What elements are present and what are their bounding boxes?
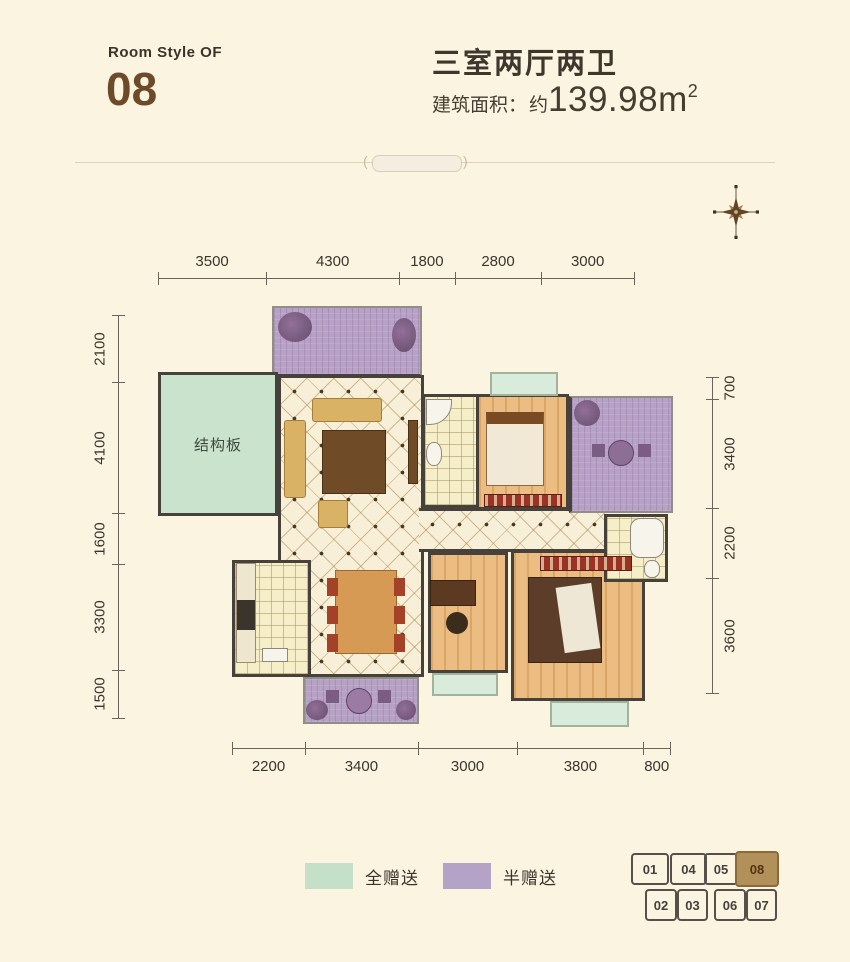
- area-value: 139.98m: [548, 80, 688, 119]
- legend-label: 全赠送: [365, 864, 419, 889]
- ruler-tick-left: [112, 564, 125, 565]
- ruler-tick-left: [112, 513, 125, 514]
- unit-04: 04: [670, 853, 707, 885]
- ruler-tick-left: [112, 718, 125, 719]
- structural-slab-room: 结构板: [158, 372, 278, 516]
- unit-05: 05: [704, 853, 738, 885]
- cabinet-master: [540, 556, 632, 571]
- dim-top-2800: 2800: [481, 253, 514, 270]
- legend-swatch: [443, 863, 491, 889]
- dim-left-4100: 4100: [92, 431, 109, 464]
- ruler-line-right: [712, 377, 713, 693]
- ruler-tick-bottom: [418, 742, 419, 755]
- legend-label: 半赠送: [503, 864, 557, 889]
- ruler-tick-right: [706, 377, 719, 378]
- study-chair: [446, 612, 468, 634]
- plant: [392, 318, 416, 352]
- dim-right-3400: 3400: [722, 437, 739, 470]
- balcony-table-bottom: [346, 688, 372, 714]
- armchair: [318, 500, 348, 528]
- corridor: [419, 508, 609, 552]
- dim-left-1600: 1600: [92, 522, 109, 555]
- dim-right-3600: 3600: [722, 619, 739, 652]
- ruler-tick-top: [266, 272, 267, 285]
- dim-bottom-2200: 2200: [252, 758, 285, 775]
- dining-chair: [327, 578, 338, 596]
- coffee-table: [322, 430, 386, 494]
- divider-paren-left: (: [363, 153, 368, 169]
- ruler-tick-right: [706, 508, 719, 509]
- dining-chair: [394, 578, 405, 596]
- ruler-tick-bottom: [517, 742, 518, 755]
- unit-02: 02: [645, 889, 677, 921]
- ruler-tick-top: [158, 272, 159, 285]
- cabinet-bedroom-2: [484, 494, 562, 507]
- ruler-tick-bottom: [305, 742, 306, 755]
- toilet-master: [644, 560, 660, 578]
- ruler-tick-left: [112, 382, 125, 383]
- dim-bottom-3000: 3000: [451, 758, 484, 775]
- dim-top-4300: 4300: [316, 253, 349, 270]
- bed-bedroom-2: [486, 412, 544, 486]
- dining-table: [335, 570, 397, 654]
- dim-bottom-800: 800: [644, 758, 669, 775]
- dim-top-3000: 3000: [571, 253, 604, 270]
- ruler-tick-bottom: [670, 742, 671, 755]
- unit-07: 07: [746, 889, 777, 921]
- area-label: 建筑面积：: [432, 95, 527, 116]
- dining-chair: [394, 606, 405, 624]
- area-approx: 约: [529, 95, 548, 116]
- plant: [574, 400, 600, 426]
- dim-left-3300: 3300: [92, 601, 109, 634]
- bay-window-bedroom-2: [490, 372, 558, 396]
- bay-window-master: [550, 701, 629, 727]
- kitchen-stove: [237, 600, 255, 630]
- ruler-tick-right: [706, 693, 719, 694]
- balcony-chair: [326, 690, 339, 703]
- dim-top-3500: 3500: [195, 253, 228, 270]
- balcony-chair: [638, 444, 651, 457]
- ruler-tick-right: [706, 399, 719, 400]
- ruler-tick-bottom: [232, 742, 233, 755]
- legend-item-0: 全赠送: [305, 863, 419, 889]
- ruler-tick-top: [399, 272, 400, 285]
- dining-chair: [327, 606, 338, 624]
- ruler-tick-right: [706, 578, 719, 579]
- divider-ornament: [372, 155, 462, 172]
- balcony-chair: [592, 444, 605, 457]
- sofa-main: [284, 420, 306, 498]
- study-desk: [430, 580, 476, 606]
- area-line: 建筑面积：约139.98m2: [432, 80, 698, 120]
- dim-bottom-3400: 3400: [345, 758, 378, 775]
- plant: [306, 700, 328, 720]
- room-number: 08: [106, 62, 157, 116]
- ruler-line-bottom: [232, 748, 670, 749]
- floorplan-page: Room Style OF 08 三室两厅两卫 建筑面积：约139.98m2 (…: [0, 0, 850, 962]
- study-room: [428, 552, 508, 673]
- toilet-bathroom-1: [426, 442, 442, 466]
- ruler-tick-left: [112, 670, 125, 671]
- legend-item-1: 半赠送: [443, 863, 557, 889]
- dining-chair: [394, 634, 405, 652]
- unit-06: 06: [714, 889, 746, 921]
- unit-01: 01: [631, 853, 669, 885]
- structural-slab-label: 结构板: [161, 375, 275, 513]
- legend-swatch: [305, 863, 353, 889]
- ruler-tick-top: [455, 272, 456, 285]
- compass-icon: [710, 184, 762, 240]
- balcony-chair: [378, 690, 391, 703]
- dim-bottom-3800: 3800: [564, 758, 597, 775]
- dim-left-2100: 2100: [92, 332, 109, 365]
- ruler-tick-left: [112, 315, 125, 316]
- plant: [278, 312, 312, 342]
- plant: [396, 700, 416, 720]
- ruler-line-top: [158, 278, 634, 279]
- divider-paren-right: ): [463, 153, 468, 169]
- kitchen-sink: [262, 648, 288, 662]
- bay-window-study: [432, 673, 498, 696]
- page-title: 三室两厅两卫: [432, 40, 618, 82]
- dining-chair: [327, 634, 338, 652]
- ruler-tick-bottom: [643, 742, 644, 755]
- sofa-loveseat: [312, 398, 382, 422]
- dim-right-2200: 2200: [722, 526, 739, 559]
- dim-left-1500: 1500: [92, 677, 109, 710]
- dim-right-700: 700: [722, 376, 739, 401]
- unit-03: 03: [677, 889, 708, 921]
- tv-cabinet: [408, 420, 418, 484]
- bathtub-master: [630, 518, 664, 558]
- room-style-label: Room Style OF: [108, 44, 222, 61]
- unit-08: 08: [735, 851, 779, 887]
- ruler-tick-top: [541, 272, 542, 285]
- ruler-tick-top: [634, 272, 635, 285]
- dim-top-1800: 1800: [410, 253, 443, 270]
- balcony-table-right: [608, 440, 634, 466]
- area-sup: 2: [688, 81, 698, 101]
- ruler-line-left: [118, 315, 119, 718]
